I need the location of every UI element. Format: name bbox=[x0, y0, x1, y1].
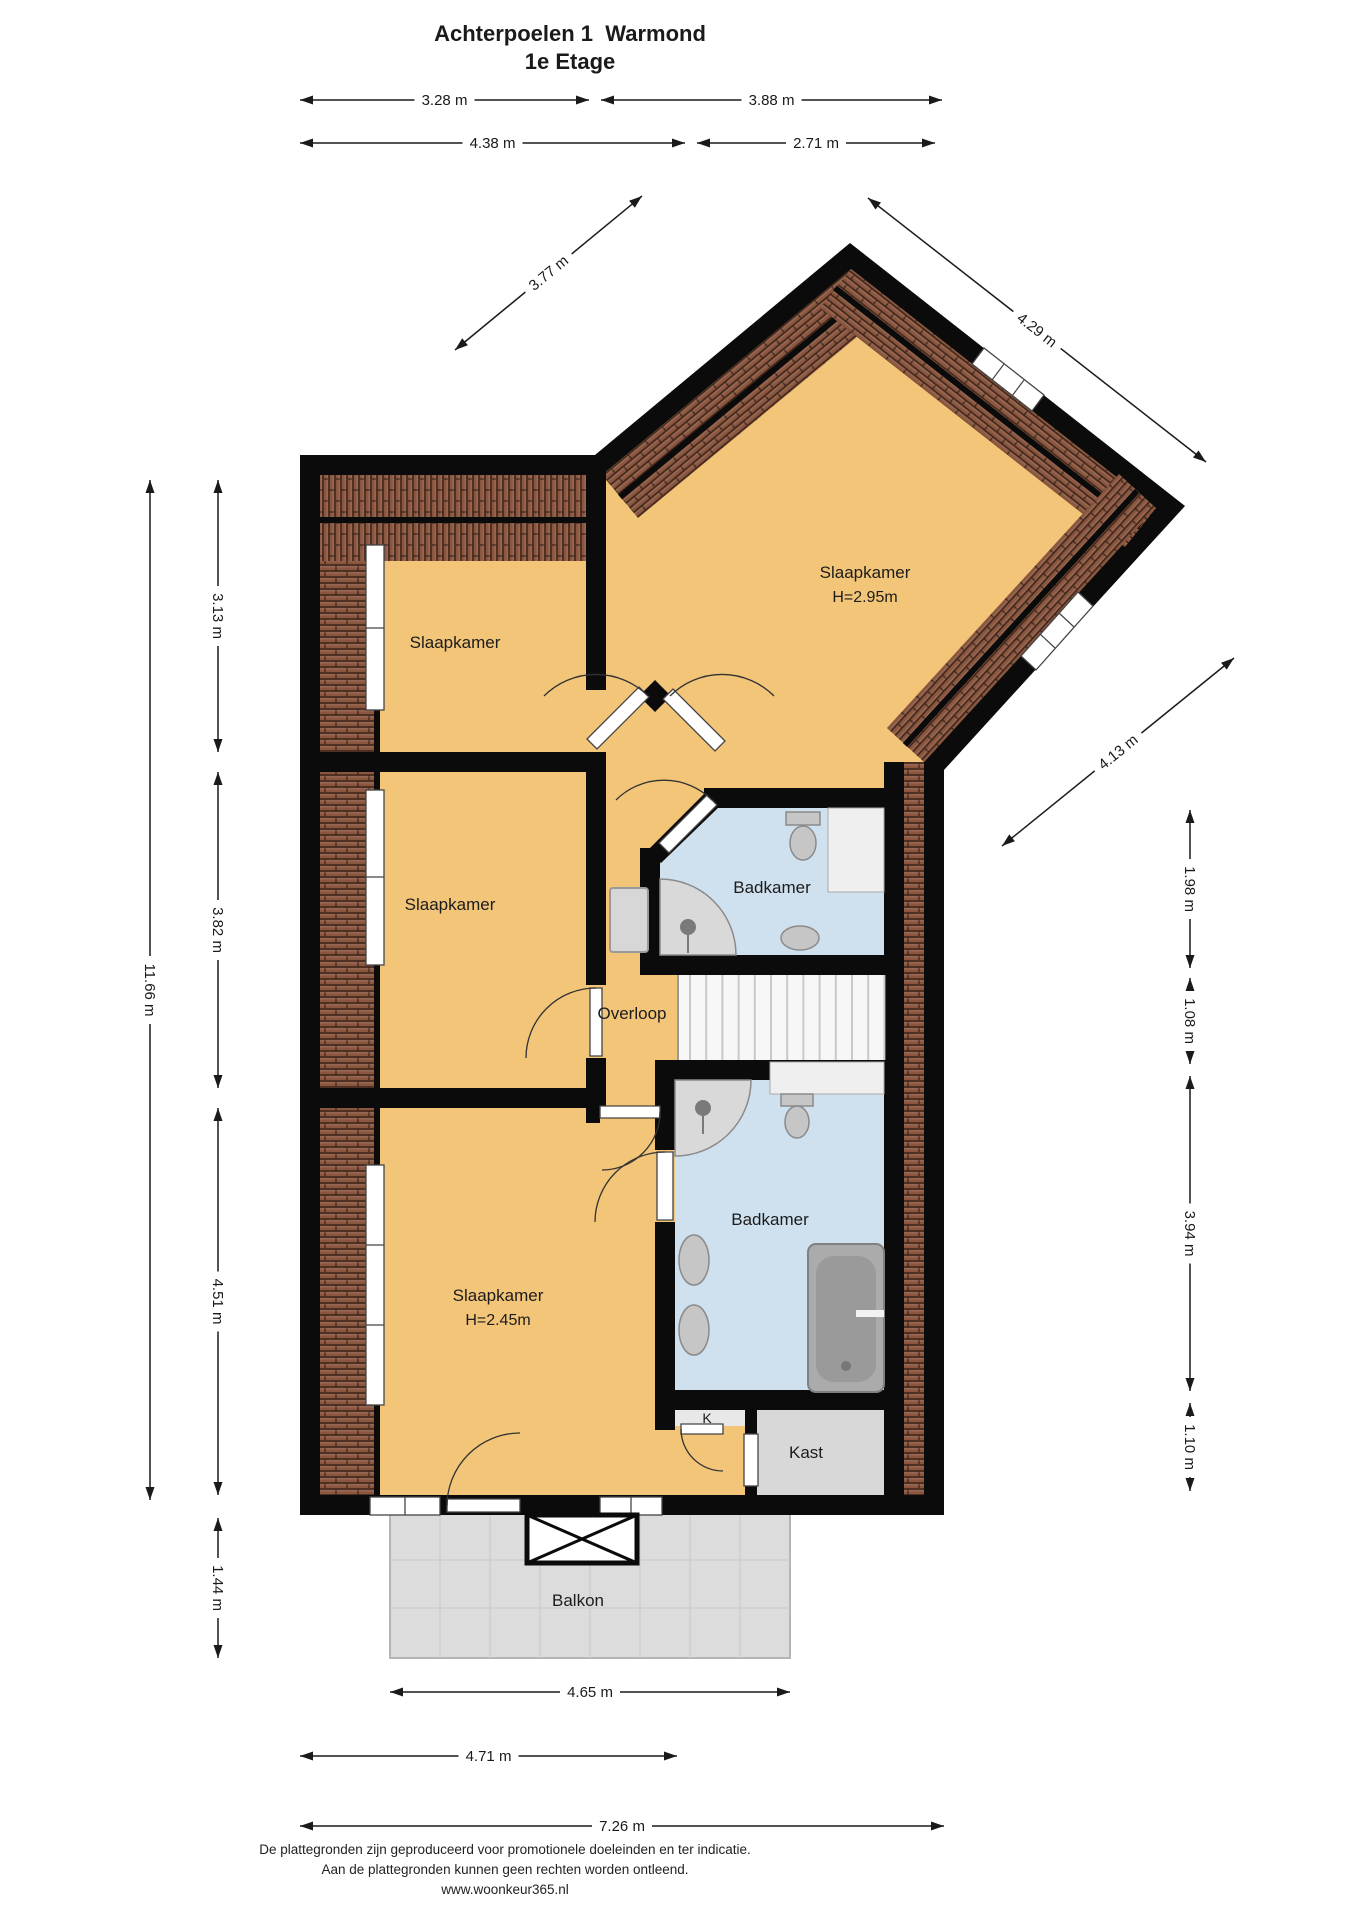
toilet bbox=[781, 1094, 813, 1106]
dimension-label: 1.44 m bbox=[209, 1565, 226, 1611]
room-label-slaapkamer-west: Slaapkamer bbox=[405, 895, 496, 914]
dimension: 2.71 m bbox=[697, 133, 935, 153]
dimension: 4.51 m bbox=[208, 1108, 228, 1495]
sink bbox=[679, 1235, 709, 1285]
room-label-slaapkamer-noordoost-height: H=2.95m bbox=[832, 589, 897, 606]
room-label-badkamer-onder: Badkamer bbox=[731, 1210, 809, 1229]
sink bbox=[679, 1305, 709, 1355]
dimension: 4.13 m bbox=[1002, 658, 1234, 846]
dimension-label: 7.26 m bbox=[599, 1818, 645, 1835]
room-label-balkon: Balkon bbox=[552, 1591, 604, 1610]
room-label-slaapkamer-zuid-height: H=2.45m bbox=[465, 1312, 530, 1329]
room-label-k-kast: K bbox=[702, 1410, 712, 1426]
dimension: 3.82 m bbox=[208, 772, 228, 1088]
window bbox=[370, 1497, 440, 1515]
dimension: 3.77 m bbox=[455, 196, 642, 350]
window bbox=[366, 1165, 384, 1405]
window bbox=[366, 545, 384, 710]
skylight-cross-box bbox=[527, 1515, 637, 1563]
bathtub bbox=[808, 1244, 884, 1392]
dimension-label: 3.94 m bbox=[1181, 1211, 1198, 1257]
room-label-slaapkamer-noordwest: Slaapkamer bbox=[410, 633, 501, 652]
dimension: 4.38 m bbox=[300, 133, 685, 153]
dimension-label: 11.66 m bbox=[141, 963, 158, 1016]
dimension: 1.44 m bbox=[208, 1518, 228, 1658]
footer-disclaimer-1: De plattegronden zijn geproduceerd voor … bbox=[0, 1840, 1010, 1860]
toilet bbox=[786, 812, 820, 825]
dimension-label: 2.71 m bbox=[793, 135, 839, 152]
dimension-label: 4.38 m bbox=[470, 135, 516, 152]
vanity-counter bbox=[828, 808, 884, 892]
footer-url: www.woonkeur365.nl bbox=[0, 1880, 1010, 1900]
window bbox=[600, 1497, 662, 1515]
staircase bbox=[678, 975, 884, 1060]
dimension: 4.71 m bbox=[300, 1746, 677, 1766]
dimension-label: 3.28 m bbox=[422, 92, 468, 109]
dimension-label: 1.98 m bbox=[1181, 866, 1198, 912]
room-label-overloop: Overloop bbox=[598, 1004, 667, 1023]
floorplan-page: Achterpoelen 1 Warmond 1e Etage Slaapkam… bbox=[0, 0, 1358, 1920]
dimension: 7.26 m bbox=[300, 1816, 944, 1836]
room-label-badkamer-boven: Badkamer bbox=[733, 878, 811, 897]
duct bbox=[610, 888, 648, 952]
vanity-counter bbox=[770, 1062, 884, 1094]
dimension-label: 1.10 m bbox=[1181, 1424, 1198, 1470]
dimension: 4.65 m bbox=[390, 1682, 790, 1702]
plan-footer: De plattegronden zijn geproduceerd voor … bbox=[0, 1840, 1010, 1900]
room-label-slaapkamer-zuid: Slaapkamer bbox=[453, 1286, 544, 1305]
room-label-kast: Kast bbox=[789, 1443, 823, 1462]
window bbox=[366, 790, 384, 965]
dimension-label: 3.13 m bbox=[209, 593, 226, 639]
dimension-label: 3.82 m bbox=[209, 907, 226, 953]
dimension-label: 4.65 m bbox=[567, 1684, 613, 1701]
dimension-label: 1.08 m bbox=[1181, 998, 1198, 1044]
dimension-label: 4.71 m bbox=[466, 1748, 512, 1765]
dimension: 1.98 m bbox=[1180, 810, 1200, 968]
floor-plan-canvas: SlaapkamerSlaapkamerSlaapkamerH=2.95mBad… bbox=[0, 0, 1358, 1920]
dimension: 3.28 m bbox=[300, 90, 589, 110]
dimension: 3.13 m bbox=[208, 480, 228, 752]
footer-disclaimer-2: Aan de plattegronden kunnen geen rechten… bbox=[0, 1860, 1010, 1880]
dimension: 1.08 m bbox=[1180, 978, 1200, 1064]
dimension-label: 4.51 m bbox=[209, 1279, 226, 1325]
dimension: 3.88 m bbox=[601, 90, 942, 110]
sink bbox=[781, 926, 819, 950]
dimension: 1.10 m bbox=[1180, 1403, 1200, 1491]
dimension-label: 3.88 m bbox=[749, 92, 795, 109]
room-label-slaapkamer-noordoost: Slaapkamer bbox=[820, 563, 911, 582]
dimension: 3.94 m bbox=[1180, 1076, 1200, 1391]
dimension: 11.66 m bbox=[140, 480, 160, 1500]
kast-opening bbox=[744, 1434, 758, 1486]
